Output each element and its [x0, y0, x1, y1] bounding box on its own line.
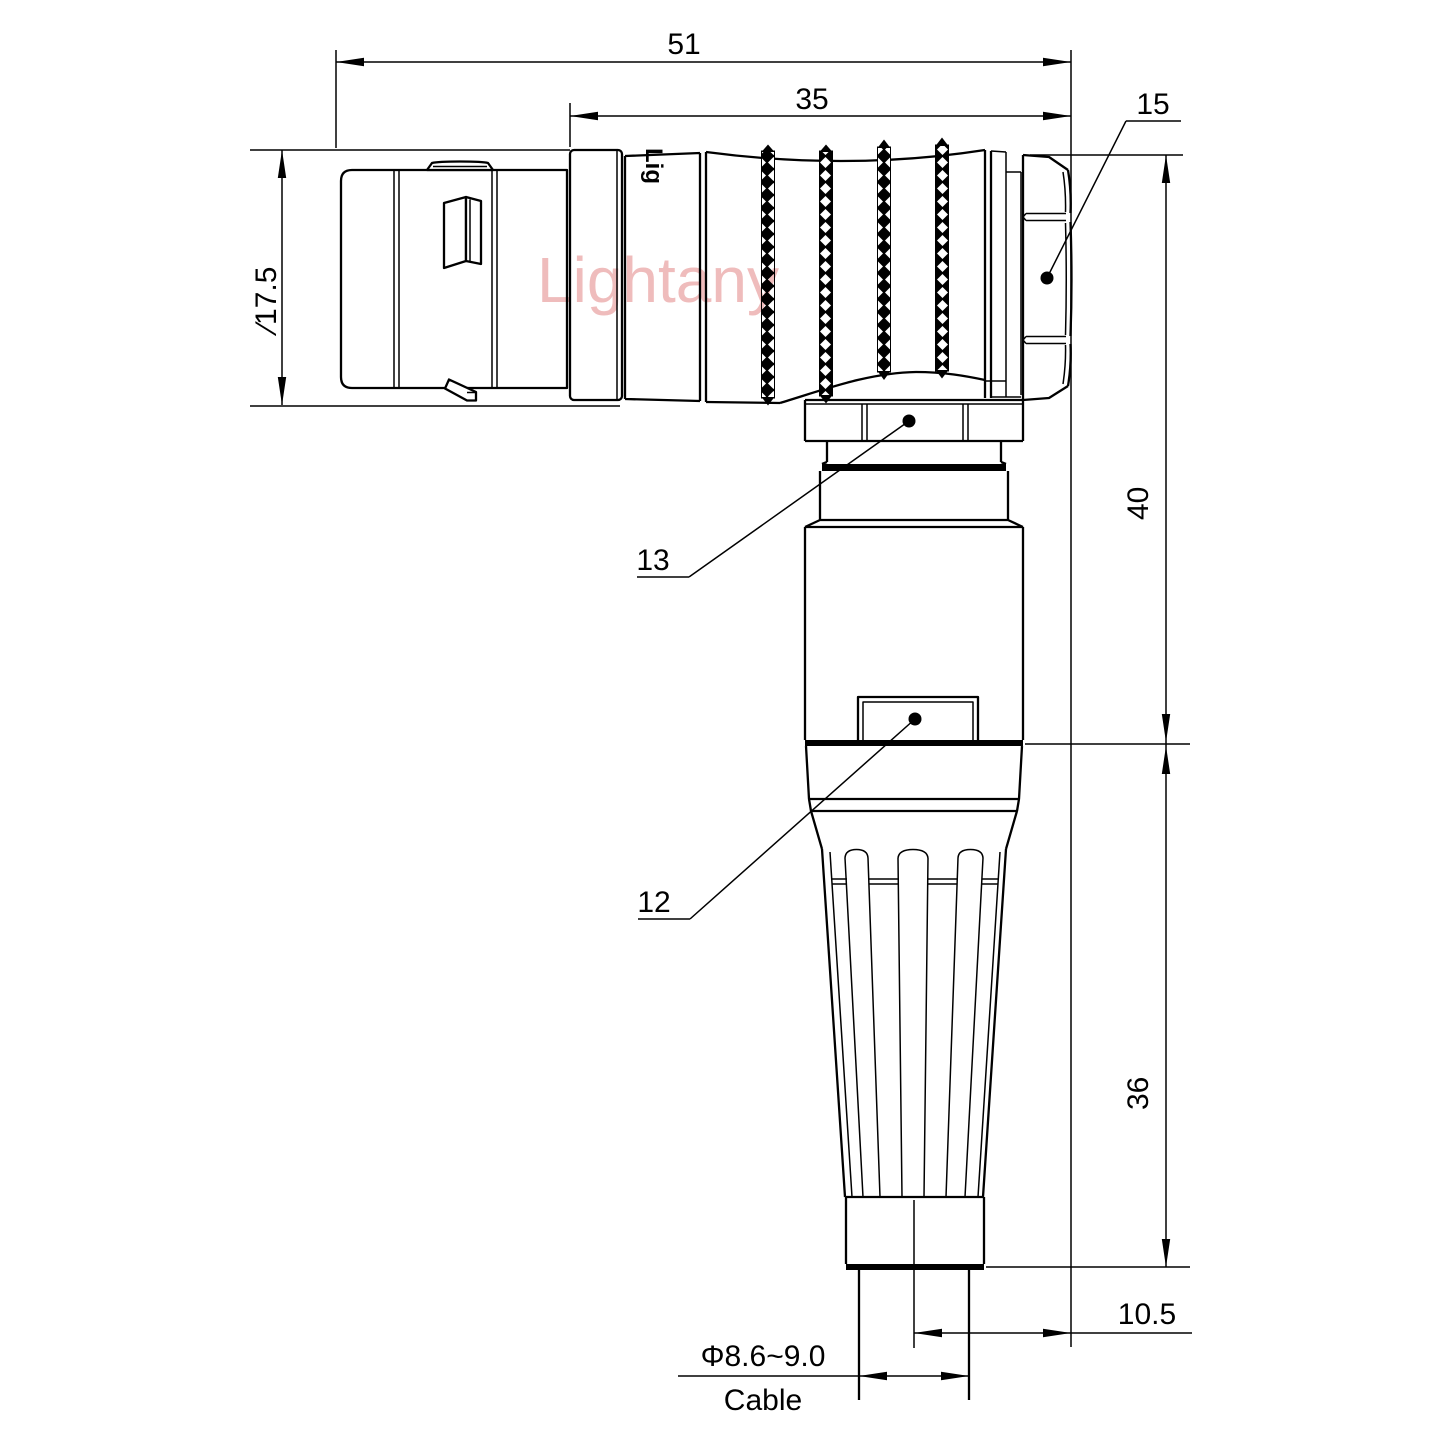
- dimension-height-upper: 40: [1122, 155, 1170, 744]
- dim-diameter-label: ∕17.5: [250, 267, 283, 337]
- part-13-label: 13: [636, 544, 669, 577]
- plug-release-sleeve: [341, 162, 567, 401]
- strain-relief-cone: [822, 849, 1006, 1197]
- dimension-height-lower: 36: [1122, 744, 1170, 1267]
- watermark-text: Lightany: [537, 244, 779, 316]
- knurl-bands: [762, 138, 949, 406]
- part-12-label: 12: [637, 886, 670, 919]
- dim-40-label: 40: [1122, 487, 1155, 520]
- drawing-canvas: Lig: [0, 0, 1440, 1440]
- dim-36-label: 36: [1122, 1077, 1155, 1110]
- seal-ring: [822, 464, 1006, 471]
- dim-51-label: 51: [667, 28, 700, 61]
- strain-relief-bell: [806, 746, 1022, 849]
- dim-cable-diameter-label: Φ8.6~9.0: [701, 1340, 826, 1373]
- dimension-cable-diameter: Φ8.6~9.0 Cable: [678, 1340, 969, 1417]
- part-label-collar: 13: [636, 415, 915, 578]
- barrel-engraving: Lig: [640, 148, 667, 184]
- connector-drawing: Lig: [0, 0, 1440, 1440]
- knurl-band: [820, 145, 833, 404]
- knurl-band: [936, 138, 949, 379]
- ferrule: [846, 1197, 984, 1270]
- elbow-neck: [822, 441, 1006, 471]
- part-15-label: 15: [1136, 88, 1169, 121]
- dim-10-5-label: 10.5: [1118, 1298, 1176, 1331]
- dim-35-label: 35: [795, 83, 828, 116]
- dimension-body-length: 35: [570, 83, 1071, 120]
- dimension-shell-diameter: ∕17.5: [250, 150, 286, 405]
- elbow-upper-housing: [805, 471, 1023, 527]
- knurl-band: [878, 140, 891, 381]
- part-label-hex-nut: 15: [1041, 88, 1182, 285]
- dimension-overall-length: 51: [336, 28, 1071, 66]
- cable-label: Cable: [724, 1384, 802, 1417]
- latch-window: [444, 197, 481, 268]
- dimension-offset: 10.5: [914, 1298, 1192, 1337]
